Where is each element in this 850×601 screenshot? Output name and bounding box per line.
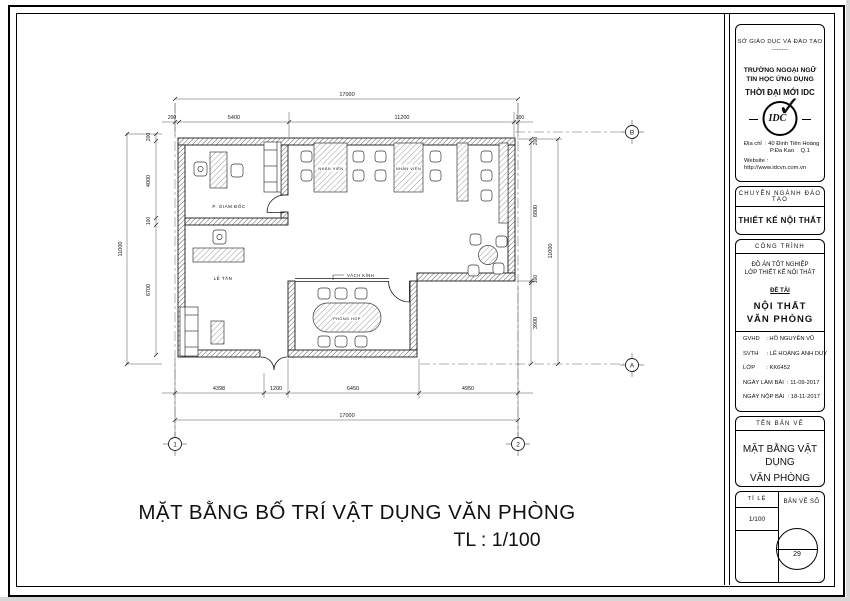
- wall-meeting-bottom: [288, 350, 417, 357]
- logo-circle: IDC ✓: [763, 101, 798, 136]
- project-line1: ĐỒ ÁN TỐT NGHIỆP: [736, 261, 824, 269]
- scale-label: TỈ LỆ: [736, 492, 778, 508]
- dim-right-3: 3900: [533, 317, 539, 329]
- round-table: [479, 246, 498, 265]
- major-value: THIẾT KẾ NỘI THẤT: [736, 216, 824, 226]
- label-glass-partition: VÁCH KÍNH: [347, 273, 374, 278]
- wall-director-right-upper: [281, 145, 288, 195]
- sheet-number-circle: 29: [776, 528, 818, 570]
- dim-bottom-2: 6450: [347, 386, 359, 392]
- meeting-door-arc: [389, 281, 410, 302]
- director-sofa: [264, 142, 281, 192]
- dim-top-0: 200: [168, 115, 177, 121]
- glass-label-leader: [333, 275, 344, 280]
- grid-label-2: 2: [516, 442, 520, 449]
- grid-label-A: A: [630, 363, 635, 370]
- dim-left-total: 11000: [118, 242, 124, 257]
- furniture: [180, 142, 508, 356]
- grid-label-1: 1: [173, 442, 177, 449]
- label-staff-1: NHÂN VIÊN: [318, 166, 343, 171]
- sheet-number-cell: BẢN VẼ SỐ: [779, 492, 824, 506]
- dim-left-2: 100: [146, 217, 152, 226]
- dim-top-2: 11200: [395, 115, 410, 121]
- info-row-ngay-lam: NGÀY LÀM BÀI : 11-09-2017: [736, 376, 824, 391]
- logo-left-line: [749, 119, 758, 120]
- dim-right-0: 200: [533, 137, 539, 146]
- staff-desk-3: [457, 143, 468, 201]
- dim-right-2: 100: [533, 275, 539, 284]
- director-desk: [210, 152, 227, 188]
- reception-desk: [193, 248, 244, 262]
- scale-cell: TỈ LỆ 1/100: [736, 492, 778, 531]
- dim-top-3: 200: [516, 115, 525, 121]
- sheet-name-header: TÊN BẢN VẼ: [736, 417, 824, 431]
- titleblock-separator-line2: [729, 13, 730, 585]
- project-box: CÔNG TRÌNH ĐỒ ÁN TỐT NGHIỆP LỚP THIẾT KẾ…: [735, 239, 825, 412]
- dim-left-0: 200: [146, 133, 152, 142]
- info-row-gvhd: GVHD : HỒ NGUYÊN VŨ: [736, 332, 824, 347]
- dim-bottom-3: 4950: [462, 386, 474, 392]
- drawing-caption: MẶT BẰNG BỐ TRÍ VẬT DỤNG VĂN PHÒNG TL : …: [138, 500, 575, 551]
- org-address-line1: Địa chỉ : 40 Đinh Tiên Hoàng: [744, 141, 824, 149]
- dim-bottom-total: 17000: [339, 413, 354, 419]
- info-row-lop: LỚP : KK6452: [736, 361, 824, 376]
- topic-line2: VĂN PHÒNG: [736, 313, 824, 326]
- school-name-line1: TRƯỜNG NGOẠI NGỮ: [736, 66, 824, 75]
- caption-scale: TL : 1/100: [453, 529, 540, 551]
- org-dots: ----------: [736, 47, 824, 53]
- sheet-number-circle-line: [776, 549, 818, 550]
- logo-right-line: [802, 119, 811, 120]
- major-box: CHUYÊN NGÀNH ĐÀO TẠO THIẾT KẾ NỘI THẤT: [735, 186, 825, 235]
- project-header: CÔNG TRÌNH: [736, 240, 824, 254]
- dim-bottom-0: 4398: [213, 386, 225, 392]
- label-meeting-room: PHÒNG HỌP: [333, 316, 361, 321]
- director-door-arc: [267, 195, 285, 213]
- label-director-room: P. GIÁM ĐỐC: [212, 203, 245, 209]
- dim-left-1: 4000: [146, 175, 152, 187]
- dim-right-1: 6800: [533, 205, 539, 217]
- scale-value: 1/100: [736, 508, 778, 531]
- sheet-number-label: BẢN VẼ SỐ: [779, 492, 824, 506]
- page-edge-shadow-right: [846, 0, 850, 601]
- reception-side-table: [211, 321, 224, 344]
- dim-bottom-1: 1200: [270, 386, 282, 392]
- label-staff-2: NHÂN VIÊN: [396, 166, 421, 171]
- director-chair-seat: [198, 166, 203, 171]
- page-edge-shadow-bottom: [0, 597, 850, 601]
- logo-check-icon: ✓: [778, 93, 801, 121]
- project-line2: LỚP THIẾT KẾ NỘI THẤT: [736, 269, 824, 277]
- wall-right: [508, 145, 515, 273]
- scale-number-box: TỈ LỆ 1/100 BẢN VẼ SỐ 29: [735, 491, 825, 583]
- entrance-door-arc-right: [274, 357, 287, 370]
- floor-plan-svg: P. GIÁM ĐỐC LỄ TÂN NHÂN VIÊN NHÂN VIÊN P…: [0, 0, 726, 601]
- idc-logo: IDC ✓: [736, 101, 824, 135]
- dim-right-total: 11000: [548, 244, 554, 259]
- sheet-name-box: TÊN BẢN VẼ MẶT BẰNG VẬT DỤNG VĂN PHÒNG: [735, 416, 825, 487]
- major-header: CHUYÊN NGÀNH ĐÀO TẠO: [736, 187, 824, 207]
- sheet-name-line1: MẶT BẰNG VẬT DỤNG: [736, 443, 824, 469]
- caption-title: MẶT BẰNG BỐ TRÍ VẬT DỤNG VĂN PHÒNG: [138, 500, 575, 524]
- drawing-sheet: P. GIÁM ĐỐC LỄ TÂN NHÂN VIÊN NHÂN VIÊN P…: [0, 0, 850, 601]
- director-guest-chair: [231, 164, 243, 177]
- wall-director-bottom: [185, 218, 288, 225]
- sheet-name-line2: VĂN PHÒNG: [736, 472, 824, 485]
- org-department: SỞ GIÁO DỤC VÀ ĐÀO TẠO: [736, 39, 824, 47]
- wall-meeting-left: [288, 281, 295, 357]
- reception-sofa: [180, 307, 198, 356]
- reception-chair-seat: [217, 234, 222, 239]
- dim-top-total: 17000: [339, 92, 354, 98]
- info-row-ngay-nop: NGÀY NỘP BÀI : 18-11-2017: [736, 390, 824, 405]
- sheet-number-value: 29: [777, 551, 817, 558]
- entrance-door-arc-left: [261, 357, 274, 370]
- org-address-line2: P.Đa Kao Q.1: [770, 148, 824, 156]
- org-website: Website : http://www.idcvn.com.vn: [744, 158, 824, 173]
- wall-meeting-right: [410, 281, 417, 350]
- label-reception: LỄ TÂN: [214, 275, 233, 281]
- school-name-line2: TIN HỌC ỨNG DỤNG: [736, 75, 824, 84]
- topic-line1: NỘI THẤT: [736, 300, 824, 313]
- dim-left-3: 6700: [146, 284, 152, 296]
- dim-top-1: 5400: [228, 115, 240, 121]
- org-box: SỞ GIÁO DỤC VÀ ĐÀO TẠO ---------- TRƯỜNG…: [735, 24, 825, 182]
- info-row-svth: SVTH : LÊ HOÀNG ANH DUY: [736, 347, 824, 362]
- topic-label: ĐỀ TÀI: [736, 287, 824, 295]
- grid-label-B: B: [630, 130, 634, 137]
- staff-desk-4: [499, 143, 508, 223]
